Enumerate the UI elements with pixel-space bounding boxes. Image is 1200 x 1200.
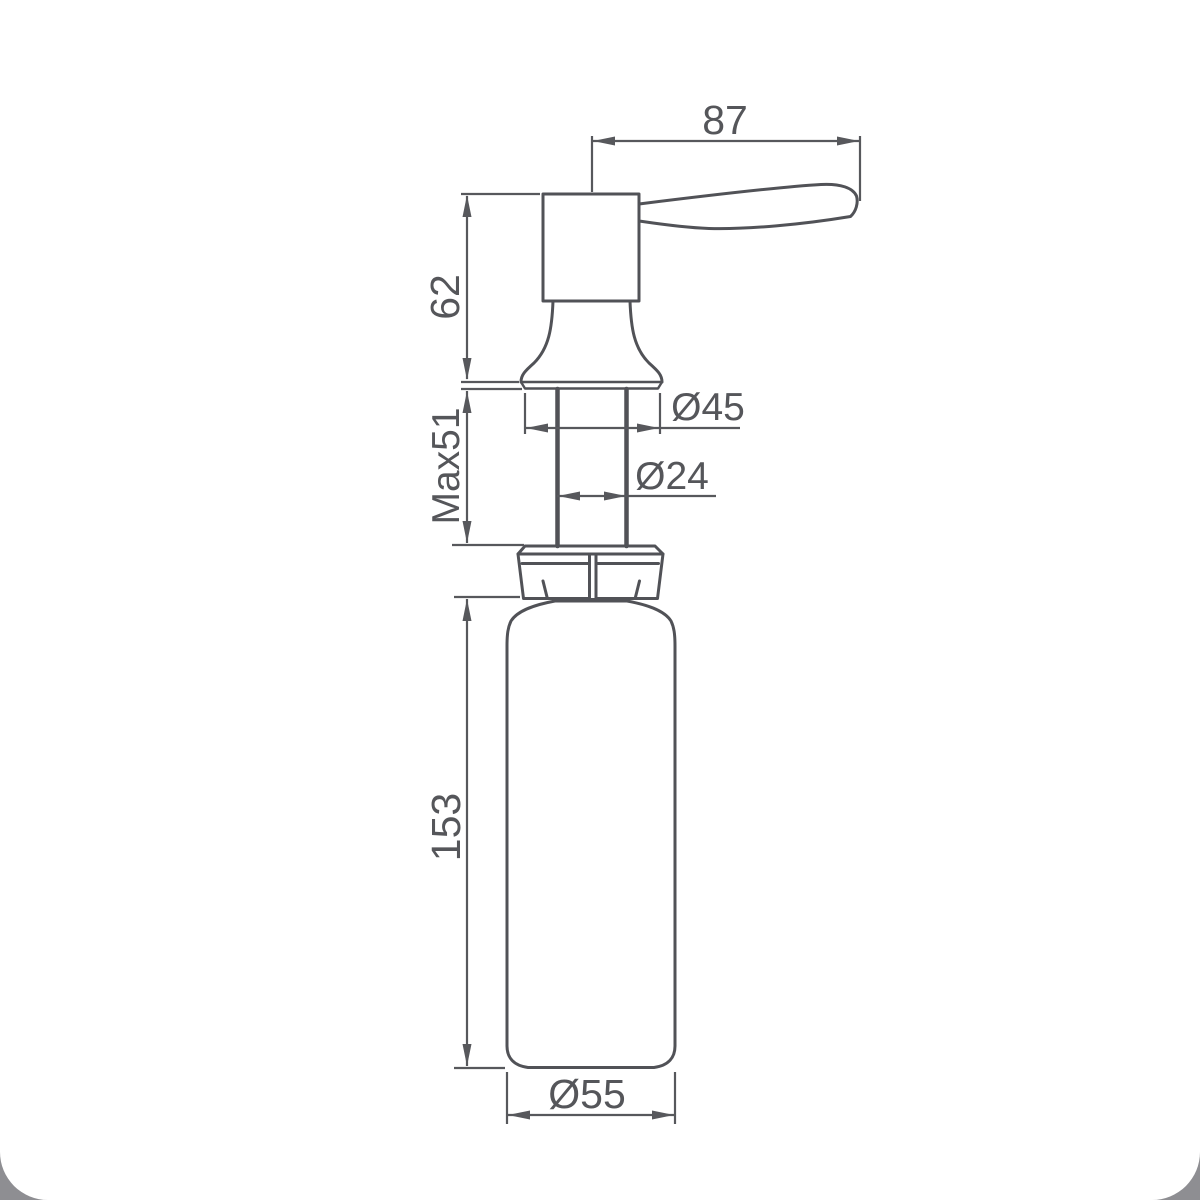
- pump-bell-right: [630, 301, 662, 382]
- arrowhead: [837, 137, 859, 146]
- drawing-canvas: 87 62 Max51 Ø45 Ø24: [0, 0, 1200, 1200]
- flange: [521, 382, 662, 389]
- bottle: [507, 601, 675, 1068]
- nut-grip-left: [543, 581, 547, 597]
- dimension-bottle-height: 153: [423, 597, 520, 1068]
- arrowhead: [463, 358, 472, 380]
- dimension-label-spout-length: 87: [702, 97, 748, 143]
- dimension-bottle-diameter: Ø55: [507, 1071, 675, 1124]
- dispenser-outline: [507, 184, 857, 1067]
- arrowhead: [593, 137, 615, 146]
- dimension-max-mount-thickness: Max51: [425, 389, 524, 545]
- nut-top-plate: [518, 546, 663, 554]
- pump-bell-left: [521, 301, 553, 382]
- arrowhead: [526, 424, 548, 433]
- spout: [639, 184, 857, 228]
- dimension-label-max-mount-thickness: Max51: [425, 407, 468, 524]
- nut-grip-right: [636, 581, 640, 597]
- nut-center-slot: [590, 554, 597, 600]
- dimension-tube-diameter: Ø24: [557, 455, 716, 501]
- nut-right-lobe: [597, 554, 664, 599]
- arrowhead: [558, 492, 580, 501]
- soap-dispenser-technical-drawing: 87 62 Max51 Ø45 Ø24: [0, 0, 1200, 1200]
- dimension-label-pump-height: 62: [422, 274, 468, 320]
- arrowhead: [463, 195, 472, 217]
- pump-head: [543, 194, 639, 301]
- arrowhead: [508, 1111, 530, 1120]
- dimension-label-bottle-height: 153: [423, 793, 469, 861]
- arrowhead: [463, 1044, 472, 1066]
- arrowhead: [463, 599, 472, 621]
- dimension-label-tube-diameter: Ø24: [635, 455, 709, 498]
- arrowhead: [604, 492, 626, 501]
- arrowhead: [637, 424, 659, 433]
- dimension-pump-height: 62: [422, 194, 540, 382]
- dimension-label-bottle-diameter: Ø55: [548, 1071, 626, 1117]
- dimension-label-flange-diameter: Ø45: [671, 386, 745, 429]
- mounting-nut: [518, 546, 663, 600]
- arrowhead: [652, 1111, 674, 1120]
- nut-left-lobe: [518, 554, 589, 599]
